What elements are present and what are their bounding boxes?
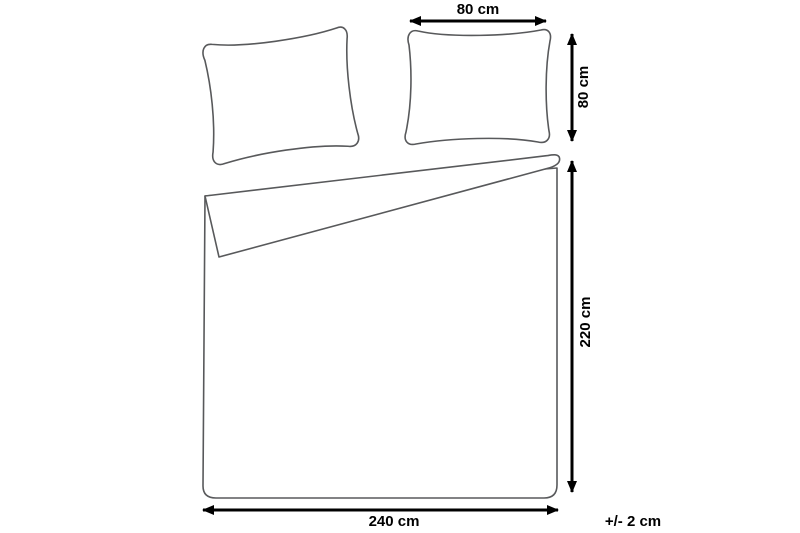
tolerance-label: +/- 2 cm xyxy=(563,513,703,531)
duvet-height-label: 220 cm xyxy=(577,242,595,402)
duvet-width-label: 240 cm xyxy=(324,513,464,531)
dimension-diagram: 80 cm 80 cm 220 cm 240 cm +/- 2 cm xyxy=(0,0,800,533)
duvet-illustration xyxy=(203,155,560,498)
pillow-height-label: 80 cm xyxy=(575,27,593,147)
pillow-width-label: 80 cm xyxy=(403,1,553,19)
left-pillow-illustration xyxy=(199,26,361,165)
right-pillow-illustration xyxy=(405,30,550,145)
bedding-diagram-canvas xyxy=(0,0,800,533)
